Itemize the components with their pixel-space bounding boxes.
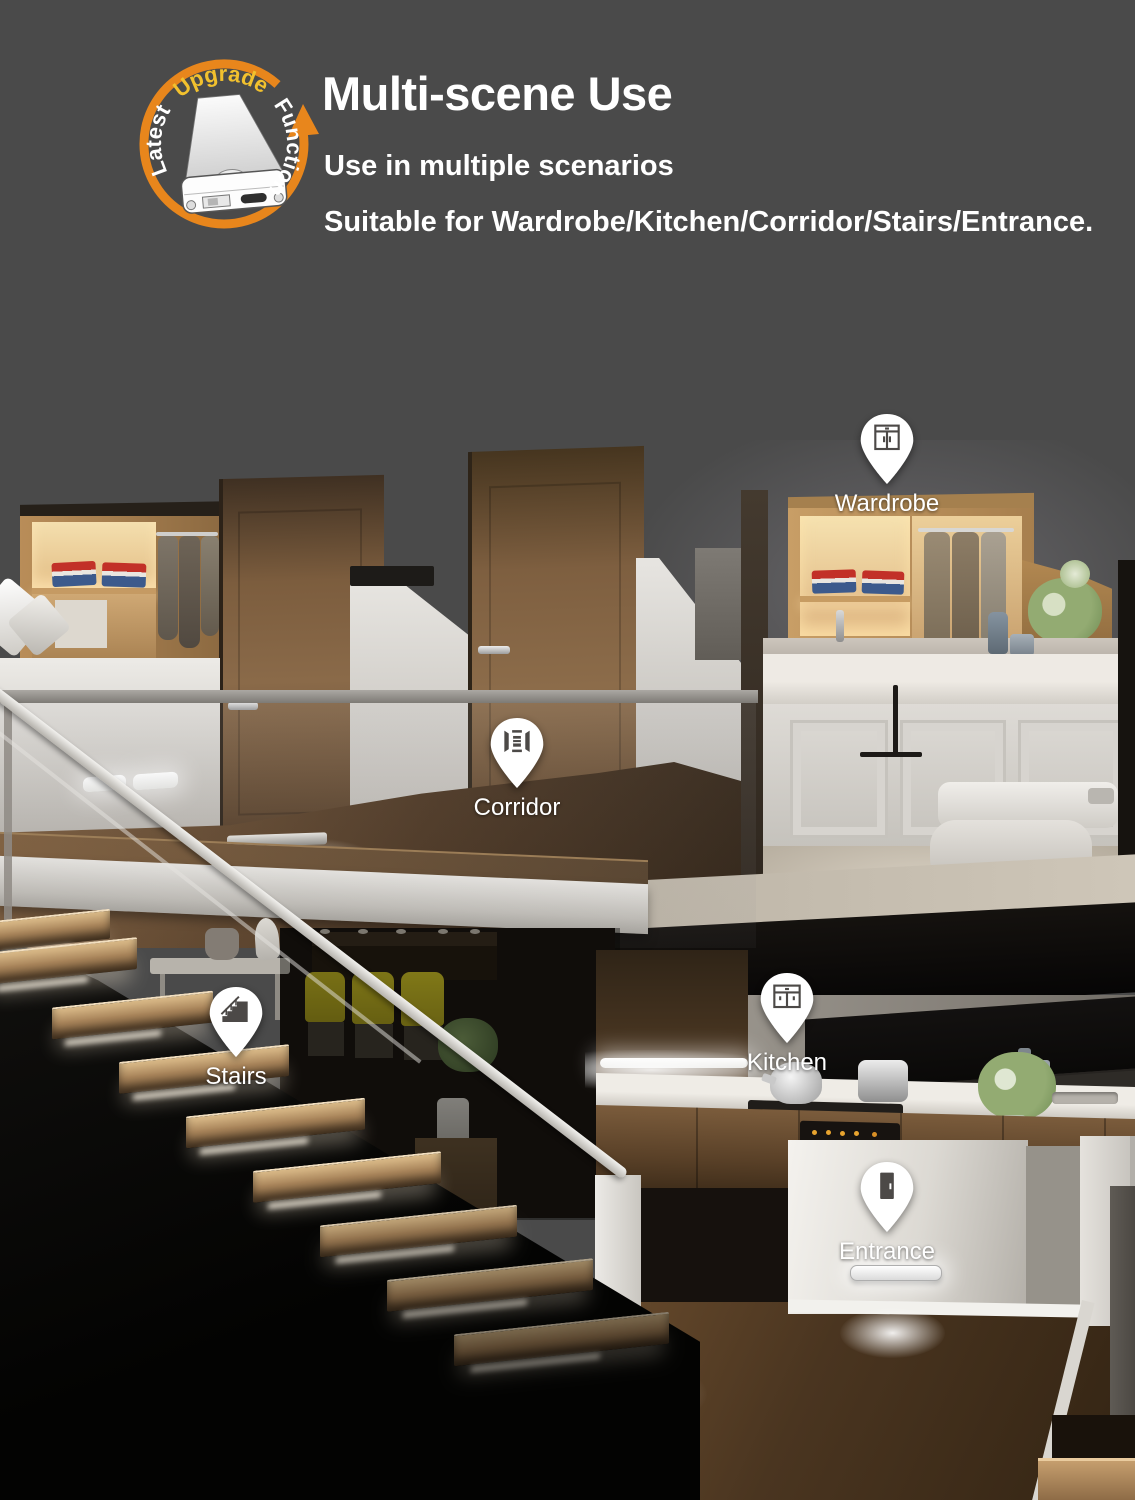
house-cutaway-scene: [0, 410, 1135, 1500]
flower-bouquet: [1028, 578, 1102, 644]
bathroom-cup: [1010, 634, 1034, 656]
vanity-cabinet-panel: [790, 720, 888, 838]
pin-kitchen: Kitchen: [707, 971, 867, 1077]
description: Suitable for Wardrobe/Kitchen/Corridor/S…: [324, 206, 1093, 239]
oven-indicator-lights: [812, 1130, 817, 1135]
folded-clothes-stack: [862, 570, 905, 594]
towel-bar-vertical: [893, 685, 898, 757]
map-pin-icon: [758, 971, 816, 1045]
bottom-step-tread: [1038, 1458, 1135, 1500]
door-handle: [478, 646, 510, 654]
pin-corridor: Corridor: [437, 716, 597, 822]
pin-label: Stairs: [156, 1063, 316, 1091]
pin-label: Entrance: [807, 1238, 967, 1266]
hanging-coat: [201, 536, 219, 636]
faucet: [836, 610, 844, 642]
flower-bouquet: [1060, 560, 1090, 588]
pin-entrance: Entrance: [807, 1160, 967, 1266]
toilet-control-panel: [1088, 788, 1114, 804]
dark-objects-on-wall: [350, 566, 434, 586]
pin-label: Wardrobe: [807, 490, 967, 518]
map-pin-icon: [488, 716, 546, 790]
hanging-coat: [179, 536, 200, 648]
entrance-icon: [880, 1173, 894, 1199]
entrance-floor-light-pool: [840, 1308, 945, 1358]
pin-stairs: Stairs: [156, 985, 316, 1091]
folded-clothes-stack: [812, 569, 857, 594]
console-table: [150, 958, 290, 974]
map-pin-icon: [207, 985, 265, 1059]
entrance-side-wall: [1026, 1146, 1082, 1316]
hanging-coat: [924, 532, 950, 650]
gray-shelf-cabinet: [695, 548, 745, 660]
pin-wardrobe: Wardrobe: [807, 412, 967, 518]
product-infographic: Multi-scene Use Use in multiple scenario…: [0, 0, 1135, 1500]
folded-clothes-stack: [102, 562, 147, 588]
pin-label: Kitchen: [707, 1049, 867, 1077]
towel-bar-horizontal: [860, 752, 922, 757]
led-motion-sensor-light-icon: [174, 91, 288, 214]
balustrade-top-rail: [0, 690, 758, 703]
folded-clothes-stack: [51, 561, 96, 587]
hanging-coat: [158, 536, 178, 640]
subtitle: Use in multiple scenarios: [324, 150, 674, 183]
entrance-led-bar: [850, 1265, 942, 1281]
flower-bouquet: [978, 1052, 1056, 1120]
vanity-counter: [763, 654, 1135, 707]
dark-passage: [640, 1188, 798, 1302]
map-pin-icon: [858, 412, 916, 486]
pin-label: Corridor: [437, 794, 597, 822]
right-wardrobe-shelf: [800, 596, 910, 602]
handbag: [205, 928, 239, 960]
upgrade-badge-graphic: Latest Upgrade Function: [126, 48, 322, 244]
map-pin-icon: [858, 1160, 916, 1234]
soap-dispenser: [988, 612, 1008, 654]
page-title: Multi-scene Use: [322, 66, 672, 121]
upgrade-badge: Latest Upgrade Function: [126, 48, 322, 249]
kitchen-sink: [1052, 1092, 1118, 1104]
